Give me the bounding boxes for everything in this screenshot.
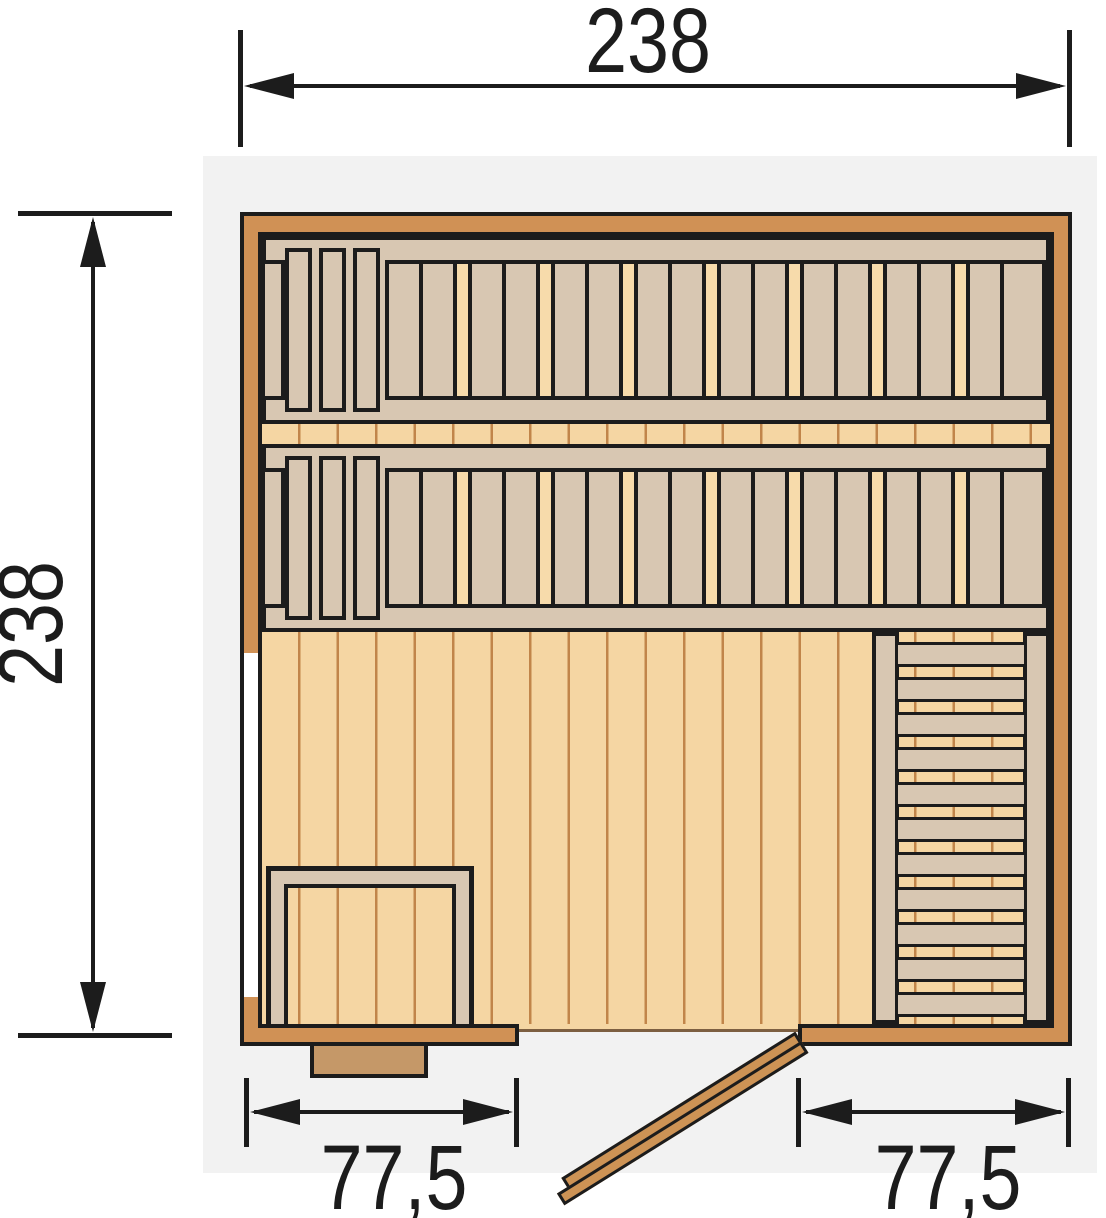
dimension-top: 238 xyxy=(241,0,1070,147)
bench-slat xyxy=(755,264,785,396)
bench-headrest-board xyxy=(319,248,346,412)
bench-slat xyxy=(506,472,536,604)
bench-end-board xyxy=(261,468,285,608)
bench-slat xyxy=(921,264,951,396)
right-bench-board xyxy=(895,992,1027,1017)
bench-slat xyxy=(389,472,419,604)
right-bench-board xyxy=(895,957,1027,982)
bench-slat-gap xyxy=(706,264,717,396)
right-bench-board xyxy=(895,922,1027,947)
right-bench-board xyxy=(895,852,1027,877)
dimension-left-label: 238 xyxy=(0,561,82,687)
bench-slat-gap xyxy=(457,264,468,396)
bench-slat xyxy=(921,472,951,604)
bench-slat xyxy=(804,264,834,396)
bench-slat-gap xyxy=(623,264,634,396)
bench-slat xyxy=(838,264,868,396)
right-bench-board xyxy=(895,782,1027,807)
bench-board-zone xyxy=(895,632,1027,1024)
right-bench-board xyxy=(895,887,1027,912)
right-bench-board xyxy=(895,747,1027,772)
bench-slat xyxy=(887,472,917,604)
right-bench-board xyxy=(895,642,1027,667)
bench-slat xyxy=(472,264,502,396)
bench-slat xyxy=(721,264,751,396)
dimension-top-label: 238 xyxy=(585,0,711,92)
bench-slat-gap xyxy=(789,264,800,396)
bench-slat xyxy=(970,264,1000,396)
dimension-left: 238 xyxy=(0,214,172,1036)
right-bench-board xyxy=(895,817,1027,842)
bench-slat xyxy=(755,472,785,604)
bench-headrest-board xyxy=(285,456,312,620)
bench-headrest-board xyxy=(285,248,312,412)
bench-slat xyxy=(804,472,834,604)
bench-slat-gap xyxy=(540,472,551,604)
bench-slat xyxy=(672,472,702,604)
bench-slat-gap xyxy=(955,472,966,604)
bench-slat xyxy=(555,472,585,604)
bench-slat-gap xyxy=(457,472,468,604)
bench-slat-gap xyxy=(623,472,634,604)
bench-headrest-board xyxy=(353,456,380,620)
bench-slat xyxy=(555,264,585,396)
bench-slat xyxy=(389,264,419,396)
bench-slat-gap xyxy=(706,472,717,604)
bench-slat xyxy=(472,472,502,604)
heater-frame xyxy=(266,866,474,1024)
bench-rail-right xyxy=(1023,632,1050,1024)
bench-slat xyxy=(721,472,751,604)
bench-slat xyxy=(423,264,453,396)
heater-frame-inner xyxy=(284,884,456,1024)
bench-slat xyxy=(638,264,668,396)
wall-window-gap xyxy=(244,653,258,997)
bench-headrest-board xyxy=(319,456,346,620)
sauna-floor-plan: 238 238 77,5 77,5 xyxy=(0,0,1106,1218)
bench-slat xyxy=(1004,472,1042,604)
bench-slats xyxy=(385,260,1046,400)
bench-slat xyxy=(970,472,1000,604)
bench-slat xyxy=(838,472,868,604)
bench-headrest-board xyxy=(353,248,380,412)
bench-slat-gap xyxy=(540,264,551,396)
bench-right xyxy=(872,632,1050,1024)
bench-slat-gap xyxy=(872,472,883,604)
right-bench-board xyxy=(895,677,1027,702)
bench-end-board xyxy=(261,260,285,400)
bench-row-upper xyxy=(262,236,1050,424)
bench-slat xyxy=(887,264,917,396)
bench-slat xyxy=(423,472,453,604)
exterior-step xyxy=(310,1046,428,1078)
door-threshold xyxy=(519,1029,798,1032)
bench-slat-gap xyxy=(872,264,883,396)
right-bench-board xyxy=(895,712,1027,737)
bench-slat xyxy=(506,264,536,396)
heater-frame-band xyxy=(271,871,469,1024)
bench-slat xyxy=(589,264,619,396)
bench-slat xyxy=(589,472,619,604)
bench-row-lower xyxy=(262,444,1050,632)
bench-slats xyxy=(385,468,1046,608)
wall-stub-cap-left xyxy=(515,1024,519,1046)
bench-slat-gap xyxy=(789,472,800,604)
bench-slat xyxy=(1004,264,1042,396)
bench-slat-gap xyxy=(955,264,966,396)
bench-slat xyxy=(672,264,702,396)
bench-slat xyxy=(638,472,668,604)
